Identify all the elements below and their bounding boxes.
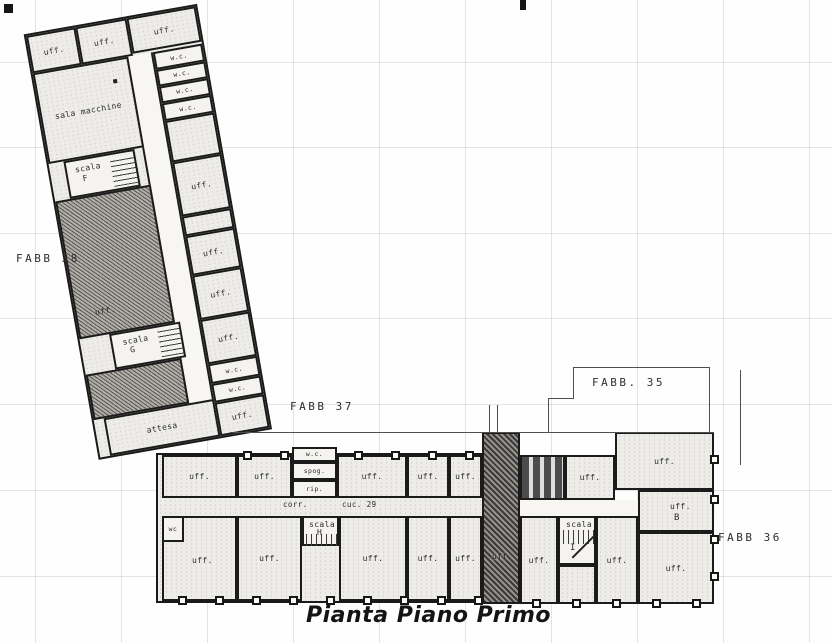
room-office: uff. — [237, 455, 292, 498]
pilaster — [710, 455, 719, 464]
registration-mark — [520, 0, 526, 10]
room-label: uff. — [666, 564, 687, 573]
room-rip: rip. — [292, 480, 337, 498]
room-office: uff. — [449, 455, 482, 498]
pilaster — [612, 599, 621, 608]
floorplan-canvas: FABB 38 FABB 37 FABB. 35 FABB 36 uff. uf… — [0, 0, 832, 643]
stair-label: scala — [566, 520, 592, 529]
stair-treads — [157, 326, 184, 357]
stair-letter-h: H — [317, 528, 322, 537]
wing-fabb37: uff. uff. w.c. spog. rip. uff. uff. uff.… — [158, 455, 482, 601]
pilaster — [428, 451, 437, 460]
room-office: uff. — [407, 516, 449, 601]
parcel-line — [548, 398, 549, 432]
room-label: uff. — [529, 556, 550, 565]
pilaster — [391, 451, 400, 460]
room-label: w.c. — [170, 52, 188, 62]
corridor-label: cuc. 29 — [342, 501, 376, 509]
room-label: sala macchine — [54, 100, 122, 121]
parcel-line — [709, 367, 710, 432]
room-label: uff. — [231, 409, 253, 421]
room-label: rip. — [306, 486, 323, 493]
room-office: uff. — [596, 516, 638, 604]
pilaster — [710, 572, 719, 581]
room-office: uff. — [337, 455, 407, 498]
room-label: w.c. — [225, 365, 243, 375]
pilaster — [465, 451, 474, 460]
parcel-line — [489, 405, 490, 432]
mark — [113, 79, 118, 84]
room-office: uff. — [615, 432, 714, 490]
room-label: wc — [169, 526, 178, 533]
room-office: uff. — [339, 516, 407, 601]
room-service-cells — [520, 455, 565, 500]
room-label: uff. — [259, 554, 280, 563]
parcel-line — [573, 367, 574, 398]
room-label: uff. — [43, 44, 65, 56]
room-label: attesa — [146, 420, 178, 434]
room-label: uff. — [607, 556, 628, 565]
room-label: uff. — [654, 457, 675, 466]
room-label: uff. — [580, 473, 601, 482]
stair-h: scala H — [302, 516, 339, 546]
pilaster — [692, 599, 701, 608]
room-label: uff. — [363, 554, 384, 563]
corridor-label: corr. — [283, 501, 308, 509]
stair-letter-g: G — [129, 345, 136, 355]
pilaster — [572, 599, 581, 608]
pilaster — [280, 451, 289, 460]
registration-mark — [4, 4, 13, 13]
room-label: w.c. — [176, 86, 194, 96]
room-label: uff. — [93, 35, 115, 47]
room-wc: w.c. — [292, 447, 337, 462]
room-office: uff. — [215, 394, 270, 436]
parcel-line — [740, 370, 741, 465]
pilaster — [652, 599, 661, 608]
pilaster — [354, 451, 363, 460]
parcel-line — [548, 398, 574, 399]
room-office: uff. — [237, 516, 302, 601]
stair-letter-f: F — [82, 173, 89, 183]
room-office: uff. — [407, 455, 449, 498]
pilaster — [252, 596, 261, 605]
parcel-line — [230, 432, 714, 433]
wing-fabb38: uff. uff. uff. sala macchine scala F uff… — [26, 6, 270, 457]
room-label: uff. — [670, 502, 691, 511]
room-dark-strip: uff. — [482, 432, 520, 604]
room-office: uff. — [638, 532, 714, 604]
room-label: uff. — [455, 554, 476, 563]
room-office: uff. — [565, 455, 615, 500]
room-label: w.c. — [228, 384, 246, 394]
pilaster — [243, 451, 252, 460]
wing-fabb36: uff. uff. uff. uff. B uff. scala I uff. … — [482, 432, 714, 604]
room-label: w.c. — [179, 103, 197, 113]
room-label: uff. — [217, 332, 239, 344]
room-label: uff. — [189, 472, 210, 481]
plan-title: Pianta Piano Primo — [306, 603, 551, 629]
room-office: uff. — [449, 516, 482, 601]
parcel-line — [573, 367, 710, 368]
room-label: uff. — [153, 24, 175, 36]
stair-label: scala — [122, 333, 149, 346]
room-label: uff. — [192, 556, 213, 565]
room-label: w.c. — [306, 451, 323, 458]
room-label: w.c. — [173, 69, 191, 79]
stair-label: scala — [74, 161, 101, 174]
pilaster — [289, 596, 298, 605]
pilaster — [710, 495, 719, 504]
pilaster — [215, 596, 224, 605]
room-label: uff. — [455, 472, 476, 481]
label-fabb-36: FABB 36 — [718, 531, 782, 544]
parcel-line — [497, 405, 498, 432]
stair-treads — [109, 153, 138, 187]
stair-i: scala I — [558, 516, 596, 565]
room-office-b: uff. B — [638, 490, 714, 532]
room-letter-b: B — [674, 514, 680, 523]
room-wc: wc — [162, 516, 184, 542]
room-label: spog. — [304, 468, 326, 475]
room-label: uff. — [94, 305, 116, 317]
room-label: uff. — [418, 554, 439, 563]
room-label: uff. — [254, 472, 275, 481]
label-fabb-38: FABB 38 — [16, 252, 80, 265]
room-office: uff. — [172, 154, 231, 217]
room-label: uff. — [210, 287, 232, 299]
room-label: uff. — [362, 472, 383, 481]
grid-line-v — [809, 0, 810, 643]
room-label: uff. — [191, 179, 213, 191]
room-sala-macchine: sala macchine — [33, 57, 145, 164]
room-label: uff. — [202, 246, 224, 258]
pilaster — [178, 596, 187, 605]
stair-letter-i: I — [570, 544, 576, 553]
label-fabb-35: FABB. 35 — [592, 376, 665, 389]
label-fabb-37: FABB 37 — [290, 400, 354, 413]
grid-line-v — [723, 0, 724, 643]
room-spog: spog. — [292, 462, 337, 480]
room-office: uff. — [520, 516, 558, 604]
room-office: uff. — [162, 455, 237, 498]
room-label: uff. — [418, 472, 439, 481]
room-label: uff. — [492, 552, 513, 561]
